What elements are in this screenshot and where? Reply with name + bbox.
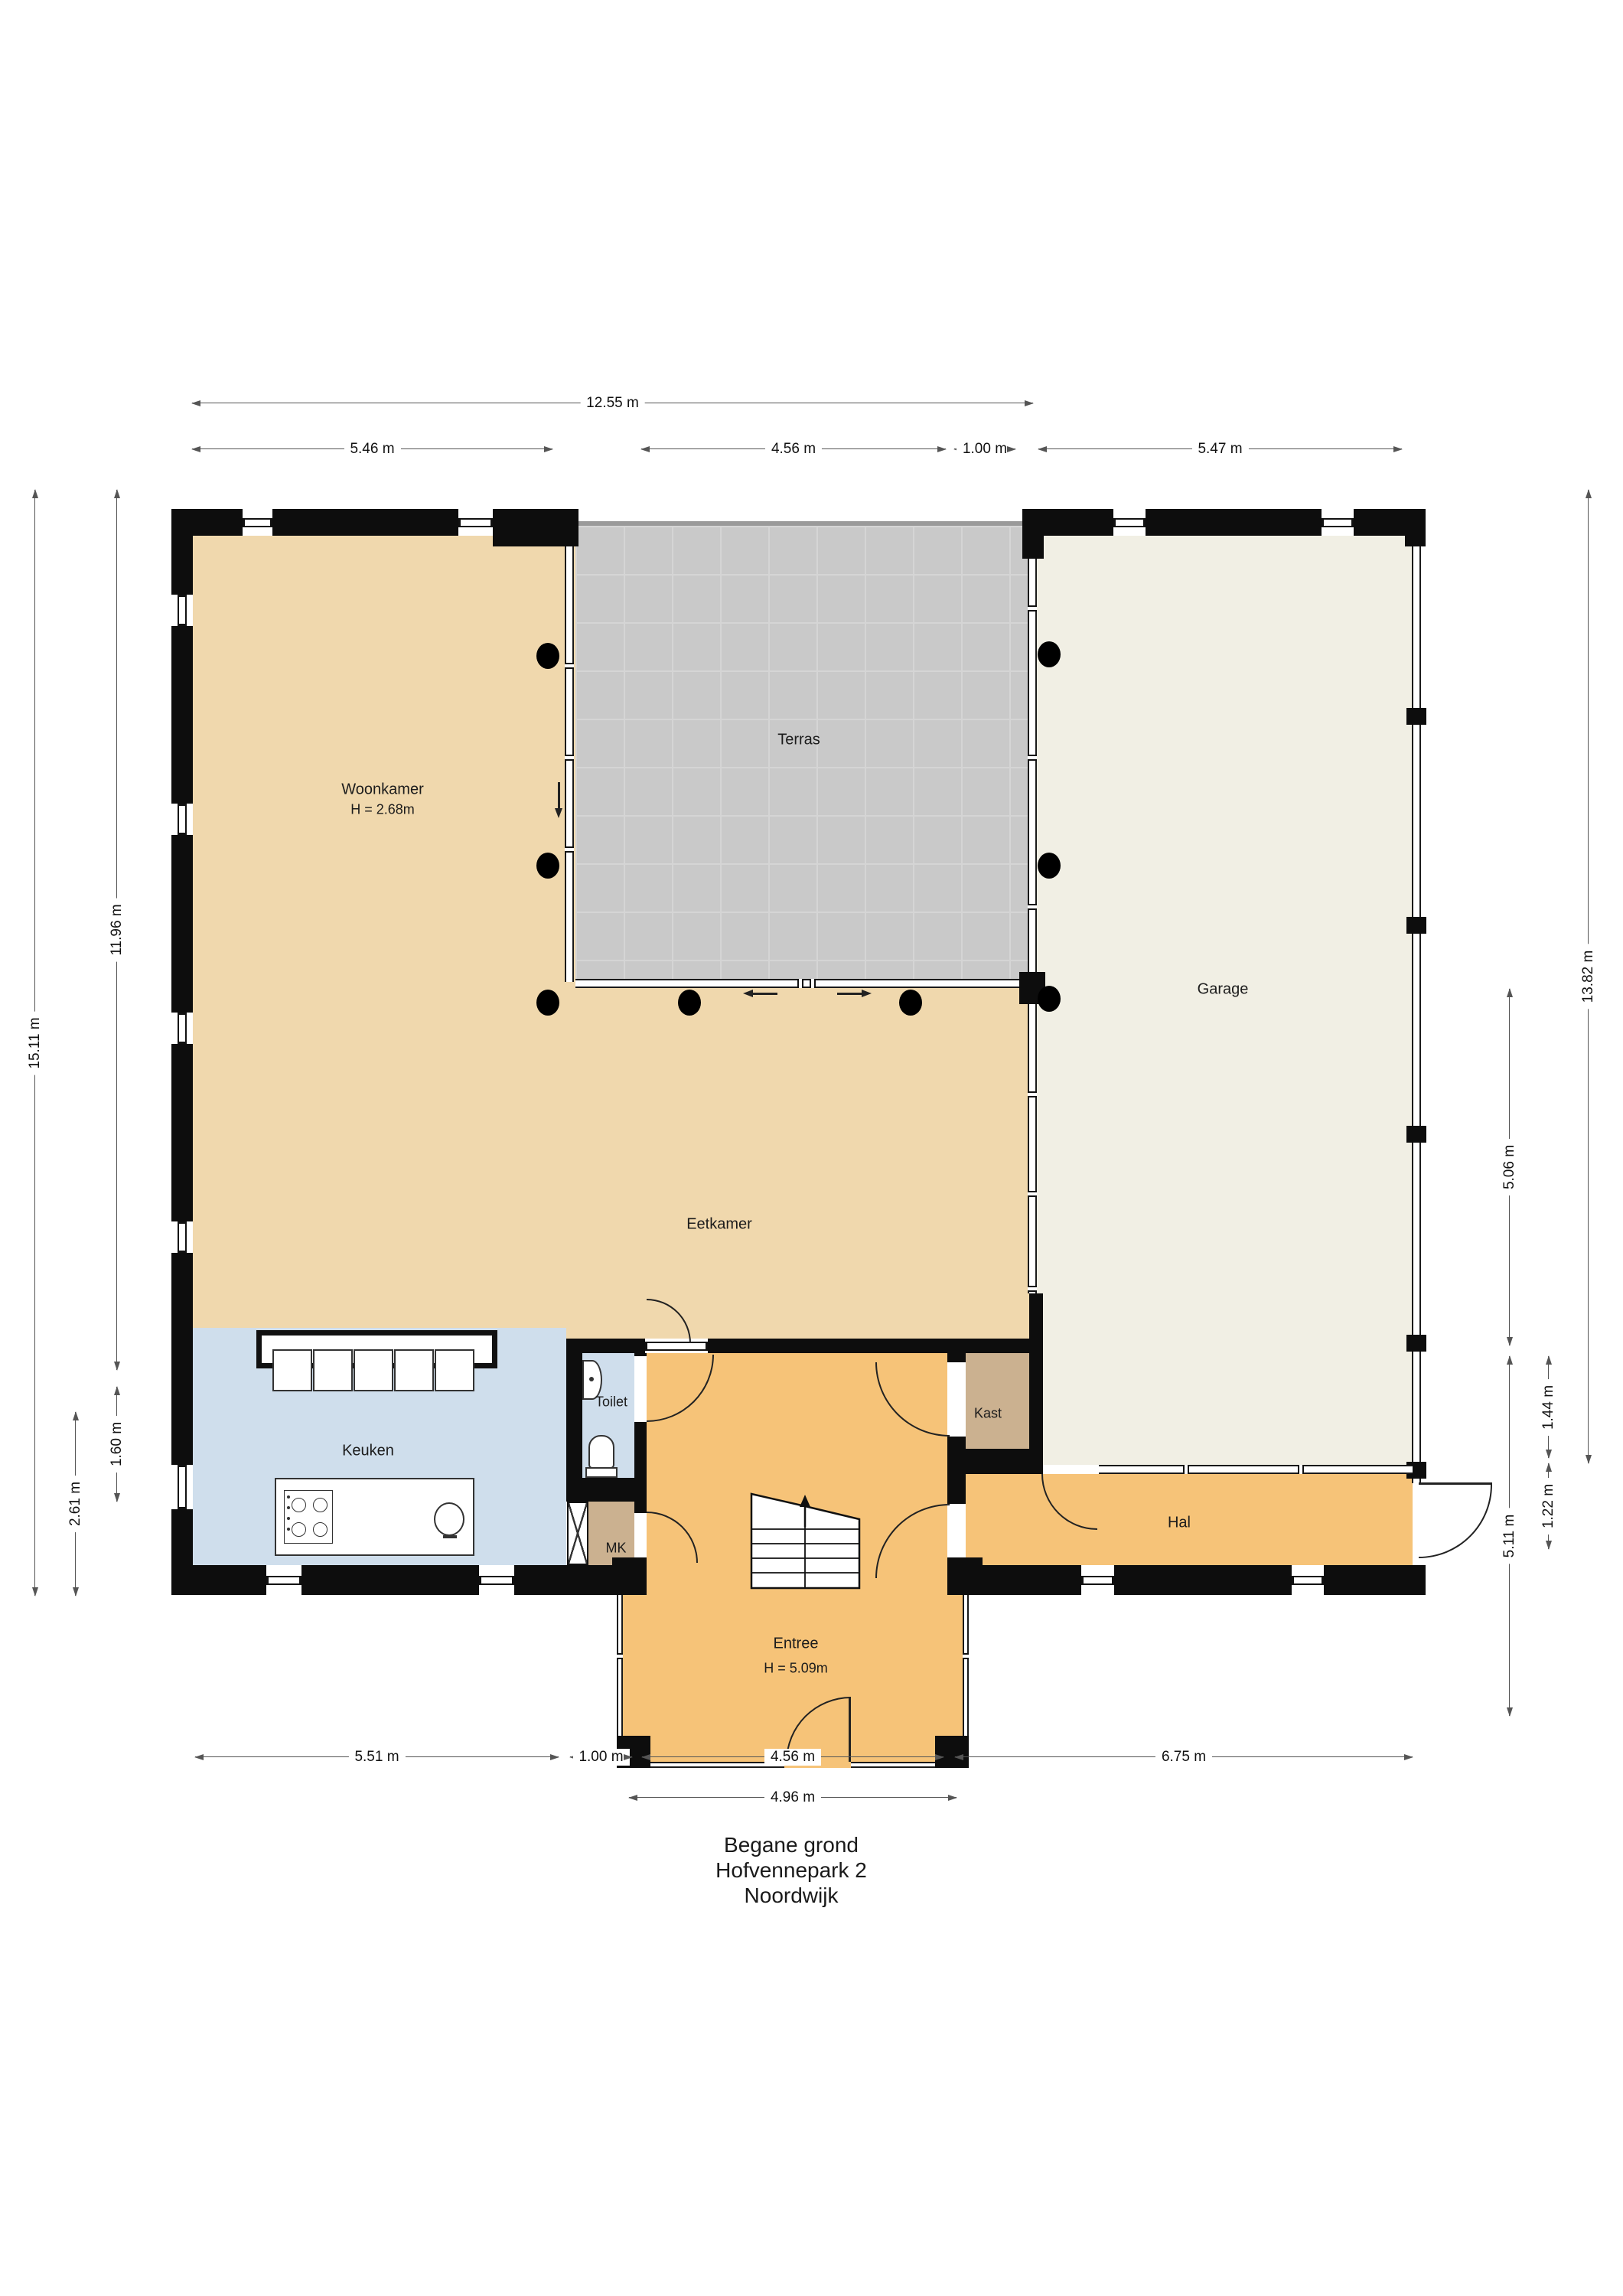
title-floor: Begane grond bbox=[715, 1832, 867, 1857]
dimension-right-kast: 1.44 m bbox=[1548, 1356, 1549, 1458]
dimension-top-gap: 1.00 m bbox=[954, 448, 1015, 449]
glass-joint bbox=[617, 1653, 623, 1659]
dimension-bottom-entree-outer: 4.96 m bbox=[629, 1797, 957, 1798]
window bbox=[479, 1565, 514, 1595]
window bbox=[171, 1013, 193, 1044]
facade-mullion bbox=[1406, 917, 1426, 934]
wall-top-garage bbox=[1022, 509, 1426, 536]
door-leaf bbox=[849, 1697, 851, 1762]
facade-mullion bbox=[1406, 1335, 1426, 1352]
glass-wall-garage-hal bbox=[1099, 1465, 1413, 1474]
dimension-right-garage: 13.82 m bbox=[1588, 490, 1589, 1463]
room-garage bbox=[1036, 536, 1413, 1465]
glass-joint bbox=[1028, 1191, 1037, 1197]
window bbox=[171, 1465, 193, 1509]
kitchen-cabinet bbox=[354, 1349, 393, 1391]
stove-knob bbox=[287, 1528, 290, 1531]
title-address: Hofvennepark 2 bbox=[715, 1857, 867, 1883]
glass-joint bbox=[1028, 1091, 1037, 1097]
wall-corner-block bbox=[1405, 536, 1426, 546]
wall-corner-block bbox=[612, 1557, 647, 1595]
dimension-right-hal: 1.22 m bbox=[1548, 1463, 1549, 1549]
wall-corner-block bbox=[1022, 536, 1044, 559]
room-label-woonkamer: Woonkamer bbox=[341, 781, 423, 799]
window bbox=[171, 1221, 193, 1253]
slide-arrow-line bbox=[837, 993, 862, 995]
glass-joint bbox=[810, 979, 816, 988]
glass-joint bbox=[1028, 755, 1037, 761]
kitchen-sink bbox=[434, 1502, 464, 1536]
glass-joint bbox=[797, 979, 803, 988]
room-label-mk: MK bbox=[606, 1541, 627, 1557]
column-dot bbox=[536, 990, 559, 1016]
room-label-entree: Entree bbox=[774, 1636, 819, 1653]
dimension-left-keuken: 2.61 m bbox=[75, 1412, 76, 1596]
facade-mullion bbox=[1406, 1126, 1426, 1143]
toilet-cistern bbox=[585, 1467, 618, 1478]
room-woonkamer bbox=[193, 536, 575, 1339]
window bbox=[243, 509, 272, 536]
toilet-bowl bbox=[588, 1435, 614, 1469]
window bbox=[171, 595, 193, 626]
room-terras bbox=[575, 521, 1029, 988]
glass-wall-woonkamer-terras bbox=[565, 545, 574, 982]
wall-bottom-left bbox=[171, 1565, 647, 1595]
kitchen-cabinet bbox=[272, 1349, 312, 1391]
slide-arrow-line bbox=[558, 782, 560, 808]
window bbox=[266, 1565, 301, 1595]
column-dot bbox=[536, 643, 559, 669]
title-block: Begane grond Hofvennepark 2 Noordwijk bbox=[715, 1832, 867, 1908]
stairs bbox=[746, 1489, 865, 1592]
room-label-eetkamer: Eetkamer bbox=[686, 1216, 752, 1234]
dimension-bottom-hal: 6.75 m bbox=[955, 1756, 1413, 1757]
column-dot bbox=[1038, 641, 1061, 667]
window bbox=[1322, 509, 1354, 536]
bumpout-corner-block bbox=[935, 1736, 969, 1768]
duct-shaft bbox=[567, 1502, 588, 1565]
dimension-left-counter: 1.60 m bbox=[116, 1387, 117, 1502]
stove bbox=[284, 1490, 333, 1544]
floorplan-canvas: Woonkamer H = 2.68m Terras Garage Eetkam… bbox=[0, 0, 1623, 2296]
window bbox=[1081, 1565, 1114, 1595]
dimension-right-upper: 5.06 m bbox=[1509, 989, 1510, 1345]
dimension-left-living: 11.96 m bbox=[116, 490, 117, 1370]
dimension-top-overall: 12.55 m bbox=[192, 403, 1033, 403]
title-city: Noordwijk bbox=[715, 1883, 867, 1908]
column-dot bbox=[1038, 853, 1061, 879]
slide-arrow-line bbox=[753, 993, 777, 995]
glass-joint bbox=[1028, 605, 1037, 612]
glass-joint bbox=[1028, 904, 1037, 910]
slide-arrow-down-icon bbox=[555, 808, 562, 818]
door-leaf bbox=[1419, 1482, 1492, 1485]
stove-burner bbox=[313, 1498, 328, 1512]
wall-corner-block bbox=[947, 1557, 983, 1595]
wall-kast-garage bbox=[1029, 1293, 1043, 1474]
dimension-bottom-keuken: 5.51 m bbox=[195, 1756, 559, 1757]
column-dot bbox=[899, 990, 922, 1016]
room-label-keuken: Keuken bbox=[342, 1443, 394, 1460]
wall-entree-left-b bbox=[634, 1422, 647, 1513]
room-height-woonkamer: H = 2.68m bbox=[350, 802, 415, 818]
stove-burner bbox=[292, 1498, 306, 1512]
wall-entree-right-a bbox=[947, 1339, 966, 1362]
room-label-toilet: Toilet bbox=[595, 1394, 627, 1411]
column-dot bbox=[678, 990, 701, 1016]
room-label-garage: Garage bbox=[1198, 981, 1249, 999]
room-label-kast: Kast bbox=[974, 1406, 1002, 1422]
wall-toilet-left bbox=[566, 1339, 582, 1478]
glass-wall-eetkamer-garage bbox=[1028, 1004, 1037, 1293]
column-dot bbox=[1038, 986, 1061, 1012]
kitchen-cabinet bbox=[313, 1349, 353, 1391]
wall-corner-block bbox=[493, 536, 578, 546]
room-eetkamer bbox=[575, 988, 1029, 1339]
dimension-top-terras: 4.56 m bbox=[641, 448, 946, 449]
dimension-top-woonkamer: 5.46 m bbox=[192, 448, 552, 449]
wall-top-main bbox=[171, 509, 578, 536]
glass-joint bbox=[565, 846, 574, 853]
glass-joint bbox=[1298, 1465, 1304, 1474]
dimension-top-garage: 5.47 m bbox=[1038, 448, 1402, 449]
glass-joint bbox=[1028, 1286, 1037, 1292]
glass-joint bbox=[565, 663, 574, 669]
wall-left bbox=[171, 509, 193, 1595]
glass-joint bbox=[963, 1653, 969, 1659]
window bbox=[458, 509, 493, 536]
room-label-hal: Hal bbox=[1168, 1515, 1191, 1532]
dimension-bottom-gap: 1.00 m bbox=[570, 1756, 632, 1757]
dimension-left-overall: 15.11 m bbox=[34, 490, 35, 1596]
stove-burner bbox=[313, 1522, 328, 1537]
slide-arrow-right-icon bbox=[862, 990, 872, 997]
kitchen-tap bbox=[443, 1535, 457, 1538]
stove-knob bbox=[287, 1506, 290, 1509]
wall-bottom-right bbox=[947, 1565, 1426, 1595]
slide-arrow-left-icon bbox=[743, 990, 753, 997]
door-arc-hal-exterior bbox=[1419, 1485, 1492, 1558]
facade-mullion bbox=[1406, 708, 1426, 725]
window bbox=[1113, 509, 1146, 536]
glass-joint bbox=[565, 755, 574, 761]
stove-knob bbox=[287, 1517, 290, 1520]
glass-joint bbox=[1183, 1465, 1189, 1474]
dimension-bottom-entree: 4.56 m bbox=[642, 1756, 943, 1757]
window bbox=[1292, 1565, 1324, 1595]
stove-burner bbox=[292, 1522, 306, 1537]
room-label-terras: Terras bbox=[777, 732, 820, 749]
wall-kast-bottom bbox=[947, 1449, 1029, 1474]
kitchen-cabinet bbox=[394, 1349, 434, 1391]
room-kast bbox=[966, 1353, 1029, 1449]
washbasin-drain bbox=[589, 1377, 594, 1381]
stove-knob bbox=[287, 1495, 290, 1499]
room-height-entree: H = 5.09m bbox=[764, 1661, 828, 1677]
dimension-right-lower: 5.11 m bbox=[1509, 1356, 1510, 1716]
column-dot bbox=[536, 853, 559, 879]
kitchen-cabinet bbox=[435, 1349, 474, 1391]
window bbox=[171, 804, 193, 835]
